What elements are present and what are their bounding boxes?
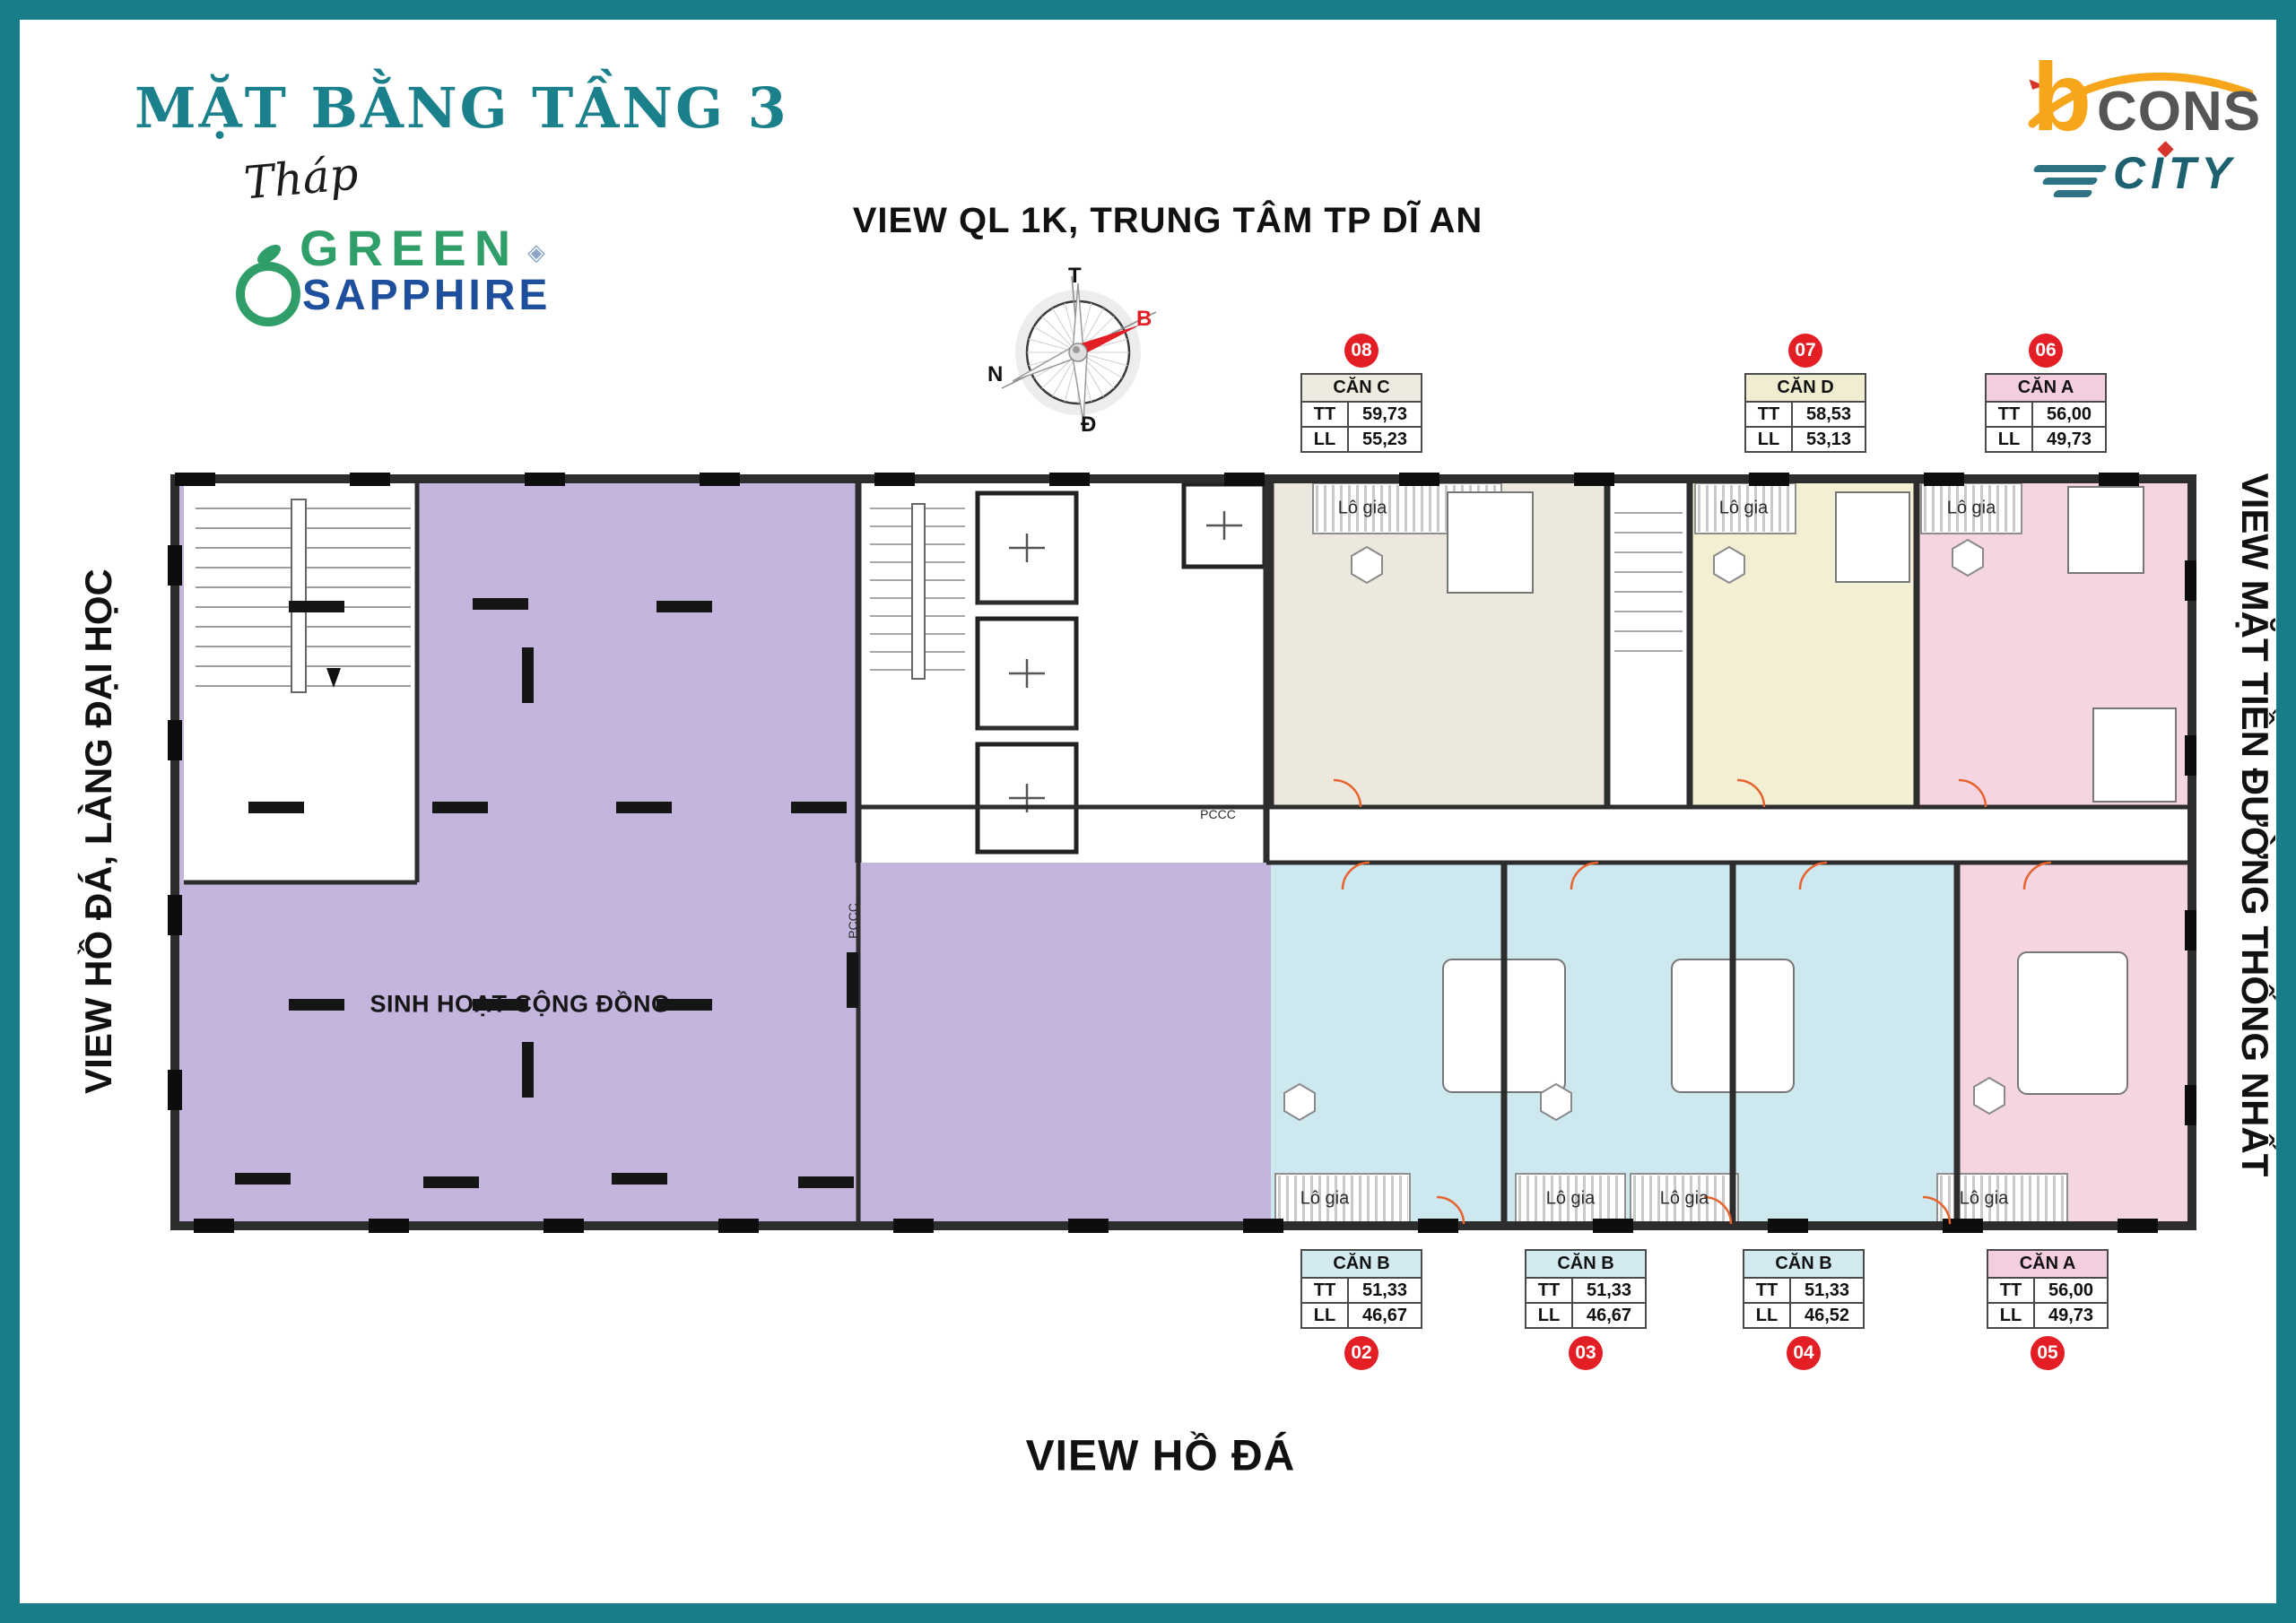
unit-name: CĂN C (1301, 374, 1422, 402)
area-tt-value: 56,00 (2034, 1278, 2108, 1303)
unit-name: CĂN A (1987, 1250, 2108, 1278)
area-row-tt-label: TT (1301, 402, 1348, 427)
brand-green-text: GREEN (300, 219, 518, 277)
unit-name: CĂN D (1745, 374, 1865, 402)
loggia-label: Lô gia (1660, 1189, 1709, 1210)
area-row-tt-label: TT (1986, 402, 2032, 427)
view-label-north: VIEW QL 1K, TRUNG TÂM TP DĨ AN (791, 201, 1544, 241)
loggia-label: Lô gia (1546, 1189, 1596, 1210)
bcons-speedline-icon (2032, 165, 2108, 172)
area-row-ll-label: LL (1986, 427, 2032, 452)
compass-dir-t: T (1068, 264, 1082, 289)
unit-card-02: CĂN B TT 51,33 LL 46,67 02 (1300, 1249, 1422, 1370)
unit-name: CĂN B (1744, 1250, 1864, 1278)
unit-name: CĂN B (1526, 1250, 1646, 1278)
unit-number-badge: 03 (1569, 1336, 1603, 1370)
pccc-label: PCCC (846, 903, 860, 939)
area-tt-value: 51,33 (1348, 1278, 1422, 1303)
area-tt-value: 51,33 (1572, 1278, 1646, 1303)
area-row-ll-label: LL (1301, 1303, 1348, 1328)
floor-plan-poster: MẶT BẰNG TẦNG 3 Tháp GREEN ◈ SAPPHIRE b … (0, 0, 2296, 1623)
unit-number-badge: 04 (1787, 1336, 1821, 1370)
area-ll-value: 49,73 (2032, 427, 2106, 452)
area-row-ll-label: LL (1987, 1303, 2034, 1328)
area-ll-value: 46,67 (1572, 1303, 1646, 1328)
page-title: MẶT BẰNG TẦNG 3 (135, 75, 789, 141)
area-row-ll-label: LL (1301, 427, 1348, 452)
area-ll-value: 49,73 (2034, 1303, 2108, 1328)
unit-number-badge: 07 (1788, 334, 1822, 368)
area-tt-value: 51,33 (1790, 1278, 1864, 1303)
loggia-label: Lô gia (1719, 499, 1769, 519)
unit-card-06: 06 CĂN A TT 56,00 LL 49,73 (1985, 334, 2107, 453)
area-row-tt-label: TT (1987, 1278, 2034, 1303)
area-row-ll-label: LL (1744, 1303, 1790, 1328)
area-ll-value: 46,52 (1790, 1303, 1864, 1328)
unit-area-table: CĂN C TT 59,73 LL 55,23 (1300, 373, 1422, 453)
view-label-east: VIEW MẶT TIỀN ĐƯỜNG THỐNG NHẤT (2233, 473, 2276, 1177)
view-label-west: VIEW HỒ ĐÁ, LÀNG ĐẠI HỌC (77, 568, 120, 1094)
unit-card-03: CĂN B TT 51,33 LL 46,67 03 (1525, 1249, 1647, 1370)
unit-area-table: CĂN A TT 56,00 LL 49,73 (1985, 373, 2107, 453)
area-row-ll-label: LL (1745, 427, 1792, 452)
gem-icon: ◈ (527, 239, 545, 266)
bcons-cons-text: CONS (2097, 84, 2261, 140)
view-label-south: VIEW HỒ ĐÁ (1026, 1432, 1296, 1481)
area-row-tt-label: TT (1526, 1278, 1572, 1303)
area-tt-value: 58,53 (1792, 402, 1865, 427)
loggia-label: Lô gia (1338, 499, 1387, 519)
green-sapphire-ring-icon (236, 262, 300, 326)
area-row-ll-label: LL (1526, 1303, 1572, 1328)
loggia-label: Lô gia (1947, 499, 1996, 519)
bcons-city-logo: b CONS CITY (2027, 65, 2269, 217)
area-ll-value: 55,23 (1348, 427, 1422, 452)
compass-dir-b: B (1136, 307, 1152, 332)
unit-card-08: 08 CĂN C TT 59,73 LL 55,23 (1300, 334, 1422, 453)
loggia-label: Lô gia (1300, 1189, 1350, 1210)
compass-rose: T B N Đ (993, 267, 1163, 438)
unit-number-badge: 06 (2029, 334, 2063, 368)
bcons-city-text: CITY (2113, 151, 2237, 195)
area-row-tt-label: TT (1744, 1278, 1790, 1303)
bcons-speedline-icon (2052, 190, 2093, 197)
unit-card-05: CĂN A TT 56,00 LL 49,73 05 (1987, 1249, 2109, 1370)
unit-name: CĂN B (1301, 1250, 1422, 1278)
unit-number-badge: 02 (1344, 1336, 1378, 1370)
unit-area-table: CĂN D TT 58,53 LL 53,13 (1744, 373, 1866, 453)
area-ll-value: 53,13 (1792, 427, 1865, 452)
floor-plan-drawing (168, 473, 2196, 1233)
community-area-label: SINH HOẠT CỘNG ĐỒNG (370, 991, 670, 1019)
unit-name: CĂN A (1986, 374, 2106, 402)
loggia-label: Lô gia (1960, 1189, 2009, 1210)
area-row-tt-label: TT (1301, 1278, 1348, 1303)
unit-number-badge: 05 (2031, 1336, 2065, 1370)
unit-card-07: 07 CĂN D TT 58,53 LL 53,13 (1744, 334, 1866, 453)
unit-area-table: CĂN B TT 51,33 LL 46,67 (1300, 1249, 1422, 1329)
compass-dir-n: N (987, 362, 1003, 387)
brand-sapphire-text: SAPPHIRE (302, 271, 551, 320)
unit-card-04: CĂN B TT 51,33 LL 46,52 04 (1743, 1249, 1865, 1370)
tower-script-label: Tháp (242, 148, 361, 210)
unit-area-table: CĂN A TT 56,00 LL 49,73 (1987, 1249, 2109, 1329)
area-tt-value: 59,73 (1348, 402, 1422, 427)
area-row-tt-label: TT (1745, 402, 1792, 427)
compass-dir-d: Đ (1081, 412, 1096, 438)
bcons-speedline-icon (2041, 178, 2099, 185)
compass-icon (993, 267, 1163, 438)
unit-number-badge: 08 (1344, 334, 1378, 368)
pccc-label: PCCC (1200, 807, 1236, 821)
unit-area-table: CĂN B TT 51,33 LL 46,67 (1525, 1249, 1647, 1329)
area-ll-value: 46,67 (1348, 1303, 1422, 1328)
unit-area-table: CĂN B TT 51,33 LL 46,52 (1743, 1249, 1865, 1329)
area-tt-value: 56,00 (2032, 402, 2106, 427)
